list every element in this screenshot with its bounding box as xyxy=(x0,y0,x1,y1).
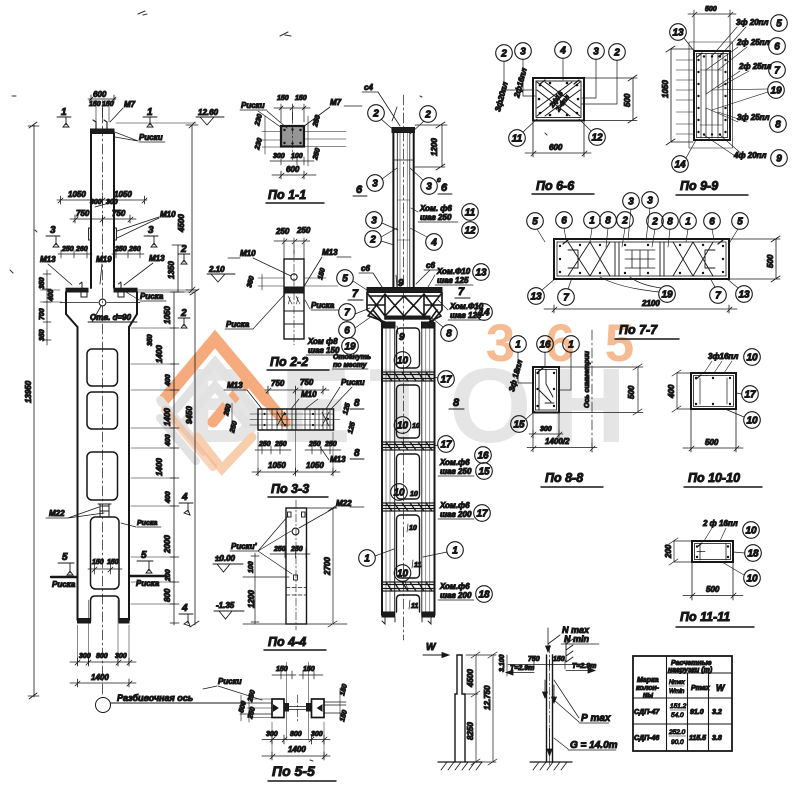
svg-text:10: 10 xyxy=(397,421,409,432)
svg-text:400: 400 xyxy=(165,491,172,504)
svg-text:По 3-3: По 3-3 xyxy=(271,482,309,496)
svg-text:19: 19 xyxy=(770,86,782,97)
svg-text:По 6-6: По 6-6 xyxy=(536,179,575,193)
svg-text:500: 500 xyxy=(705,438,719,447)
svg-text:с6: с6 xyxy=(426,261,435,270)
svg-text:2: 2 xyxy=(500,49,507,60)
svg-text:1400: 1400 xyxy=(91,673,109,682)
svg-text:нагрузки (т): нагрузки (т) xyxy=(668,667,713,674)
svg-text:14: 14 xyxy=(674,160,686,171)
svg-text:По 2-2: По 2-2 xyxy=(270,355,308,369)
svg-text:15: 15 xyxy=(478,467,490,478)
svg-text:8: 8 xyxy=(775,120,781,131)
svg-text:800: 800 xyxy=(163,588,172,602)
svg-text:800: 800 xyxy=(290,731,302,738)
svg-text:6: 6 xyxy=(774,42,780,53)
svg-text:Риска: Риска xyxy=(136,579,160,588)
svg-text:150: 150 xyxy=(276,666,288,673)
svg-text:1400/2: 1400/2 xyxy=(545,437,570,446)
svg-text:с4: с4 xyxy=(364,83,373,92)
svg-text:10: 10 xyxy=(397,569,409,580)
svg-text:1: 1 xyxy=(147,107,153,118)
svg-text:250: 250 xyxy=(258,441,271,448)
svg-text:300: 300 xyxy=(311,731,323,738)
svg-text:13950: 13950 xyxy=(24,380,33,403)
svg-text:1050: 1050 xyxy=(114,190,132,199)
svg-text:9450: 9450 xyxy=(185,406,194,424)
svg-text:±0.00: ±0.00 xyxy=(215,554,236,563)
svg-text:3.2: 3.2 xyxy=(712,709,722,716)
svg-text:1050: 1050 xyxy=(163,306,172,324)
svg-text:3: 3 xyxy=(371,216,377,227)
svg-text:Хом.ф6: Хом.ф6 xyxy=(439,501,470,510)
svg-text:6: 6 xyxy=(441,182,448,194)
svg-text:250: 250 xyxy=(290,546,303,553)
svg-text:10: 10 xyxy=(412,423,420,430)
svg-text:Хом.ф6: Хом.ф6 xyxy=(439,458,470,467)
svg-text:Риски: Риски xyxy=(218,677,242,686)
svg-text:5: 5 xyxy=(141,550,147,561)
svg-text:2: 2 xyxy=(424,110,431,121)
svg-text:7: 7 xyxy=(458,286,465,298)
svg-text:Риска: Риска xyxy=(52,580,76,589)
svg-text:17: 17 xyxy=(440,440,452,451)
svg-text:М7: М7 xyxy=(124,100,136,109)
svg-text:4ф 20пл: 4ф 20пл xyxy=(733,151,767,160)
svg-text:Отогнуть: Отогнуть xyxy=(333,354,371,361)
svg-text:300: 300 xyxy=(540,426,552,433)
svg-text:3: 3 xyxy=(148,225,154,236)
svg-text:6: 6 xyxy=(709,217,715,228)
svg-text:8250: 8250 xyxy=(466,722,475,740)
svg-text:М10: М10 xyxy=(240,249,256,258)
svg-text:260: 260 xyxy=(75,246,88,253)
svg-text:1: 1 xyxy=(568,340,574,351)
svg-text:4500: 4500 xyxy=(466,669,475,688)
svg-text:150: 150 xyxy=(553,656,565,663)
svg-text:2: 2 xyxy=(369,235,376,246)
svg-text:800: 800 xyxy=(96,653,108,660)
svg-text:3: 3 xyxy=(50,225,56,236)
svg-text:1400: 1400 xyxy=(163,408,172,426)
svg-text:Риски: Риски xyxy=(241,101,265,110)
svg-text:7: 7 xyxy=(715,291,721,302)
svg-text:3: 3 xyxy=(372,179,378,190)
svg-text:750: 750 xyxy=(112,209,126,218)
svg-text:1200: 1200 xyxy=(430,138,439,156)
svg-text:12.60: 12.60 xyxy=(198,108,219,117)
svg-text:11: 11 xyxy=(465,208,476,219)
svg-text:4: 4 xyxy=(430,238,437,249)
svg-text:2: 2 xyxy=(180,308,187,319)
svg-text:700: 700 xyxy=(39,308,46,320)
svg-text:М10: М10 xyxy=(160,210,176,219)
svg-text:М13: М13 xyxy=(227,381,243,390)
svg-text:Nmax: Nmax xyxy=(669,680,686,686)
svg-text:5: 5 xyxy=(342,274,348,285)
svg-text:Риски: Риски xyxy=(139,133,163,142)
svg-text:1: 1 xyxy=(452,546,458,557)
svg-text:1: 1 xyxy=(589,216,595,227)
svg-text:200: 200 xyxy=(664,544,673,559)
svg-text:Т=2.9т: Т=2.9т xyxy=(572,663,596,670)
svg-text:7: 7 xyxy=(352,288,359,300)
svg-text:15: 15 xyxy=(513,420,525,431)
svg-text:Марка: Марка xyxy=(637,677,659,684)
svg-text:3: 3 xyxy=(593,47,599,58)
svg-text:8: 8 xyxy=(453,397,460,409)
svg-text:1: 1 xyxy=(685,217,691,228)
svg-text:-1.35: -1.35 xyxy=(216,601,235,610)
svg-text:шаг 250: шаг 250 xyxy=(440,467,472,476)
svg-text:1050: 1050 xyxy=(306,461,324,470)
svg-text:шаг 125: шаг 125 xyxy=(450,311,482,320)
svg-text:6: 6 xyxy=(561,216,567,227)
svg-text:шаг 250: шаг 250 xyxy=(420,213,452,222)
svg-text:М13: М13 xyxy=(40,255,56,264)
svg-text:Риска: Риска xyxy=(226,320,250,329)
svg-text:150: 150 xyxy=(277,95,289,102)
svg-text:600: 600 xyxy=(286,165,300,174)
svg-text:12.750: 12.750 xyxy=(483,685,492,710)
svg-text:По 4-4: По 4-4 xyxy=(268,635,306,649)
svg-text:по месту: по месту xyxy=(333,362,368,369)
svg-text:3: 3 xyxy=(647,196,653,207)
svg-text:400: 400 xyxy=(165,374,172,387)
svg-text:17: 17 xyxy=(476,509,488,520)
svg-text:Риски': Риски' xyxy=(231,542,258,551)
svg-text:8: 8 xyxy=(667,217,673,228)
svg-text:16: 16 xyxy=(539,340,551,351)
svg-text:2: 2 xyxy=(372,109,379,120)
svg-text:3ф 20пл: 3ф 20пл xyxy=(736,18,769,27)
svg-text:Расчетные: Расчетные xyxy=(671,660,712,667)
svg-text:шаг 125: шаг 125 xyxy=(437,276,469,285)
svg-text:М13: М13 xyxy=(149,254,165,263)
svg-text:600: 600 xyxy=(549,143,563,152)
svg-text:8: 8 xyxy=(354,398,360,409)
svg-text:10: 10 xyxy=(409,525,417,532)
svg-text:СДП-46: СДП-46 xyxy=(634,735,659,742)
svg-text:М13: М13 xyxy=(330,455,346,464)
svg-text:Ось симметрии: Ось симметрии xyxy=(584,350,591,408)
svg-text:G = 14.0т: G = 14.0т xyxy=(570,740,618,751)
svg-text:750: 750 xyxy=(300,378,314,387)
svg-text:колон-: колон- xyxy=(636,685,660,692)
svg-text:5: 5 xyxy=(737,217,743,228)
svg-text:11: 11 xyxy=(411,603,418,610)
svg-text:Разбивочная ось: Разбивочная ось xyxy=(117,693,193,703)
svg-text:54.0: 54.0 xyxy=(671,712,684,719)
svg-text:500: 500 xyxy=(705,6,717,13)
svg-text:350: 350 xyxy=(39,277,46,289)
svg-text:М22: М22 xyxy=(49,509,65,518)
svg-text:200: 200 xyxy=(165,569,172,582)
svg-text:8: 8 xyxy=(354,448,360,459)
svg-text:500: 500 xyxy=(706,585,720,594)
svg-text:1: 1 xyxy=(515,340,521,351)
svg-text:5: 5 xyxy=(532,217,538,228)
svg-text:300: 300 xyxy=(79,653,91,660)
svg-text:250: 250 xyxy=(275,227,290,236)
svg-text:4: 4 xyxy=(181,492,188,503)
svg-text:1050: 1050 xyxy=(68,190,86,199)
svg-text:13: 13 xyxy=(738,290,750,301)
svg-text:2.10: 2.10 xyxy=(208,265,225,274)
svg-text:5: 5 xyxy=(62,552,68,563)
svg-text:Хом. ф6: Хом. ф6 xyxy=(419,204,452,213)
svg-text:13: 13 xyxy=(530,292,542,303)
svg-text:150: 150 xyxy=(92,559,104,566)
svg-text:150: 150 xyxy=(107,559,119,566)
svg-text:250: 250 xyxy=(296,226,311,235)
svg-text:260: 260 xyxy=(128,246,141,253)
svg-text:2: 2 xyxy=(180,244,187,255)
svg-text:7: 7 xyxy=(774,66,780,77)
svg-text:По 10-10: По 10-10 xyxy=(688,471,740,485)
svg-text:1050: 1050 xyxy=(661,80,670,98)
svg-text:1400: 1400 xyxy=(288,745,306,754)
svg-text:400: 400 xyxy=(165,434,172,447)
svg-text:3.8: 3.8 xyxy=(712,735,722,742)
svg-text:6: 6 xyxy=(344,326,350,337)
svg-text:600: 600 xyxy=(93,90,107,99)
svg-text:8: 8 xyxy=(605,216,611,227)
svg-text:8: 8 xyxy=(446,329,452,340)
svg-text:4: 4 xyxy=(559,46,566,57)
svg-text:500: 500 xyxy=(627,385,636,399)
svg-text:19: 19 xyxy=(661,290,673,301)
svg-text:250: 250 xyxy=(324,441,337,448)
svg-text:Wmin: Wmin xyxy=(669,689,685,695)
svg-text:4: 4 xyxy=(181,603,188,614)
svg-text:10: 10 xyxy=(746,353,758,364)
svg-text:2: 2 xyxy=(651,217,658,228)
svg-text:3: 3 xyxy=(628,197,634,208)
svg-text:шаг 200: шаг 200 xyxy=(440,591,472,600)
svg-text:18: 18 xyxy=(478,590,490,601)
svg-text:3: 3 xyxy=(426,182,432,193)
svg-text:750: 750 xyxy=(271,379,285,388)
svg-text:90.0: 90.0 xyxy=(671,739,684,746)
svg-text:150: 150 xyxy=(102,101,114,108)
svg-text:По 7-7: По 7-7 xyxy=(619,323,658,337)
svg-text:10: 10 xyxy=(393,488,405,499)
svg-text:350: 350 xyxy=(147,334,154,346)
svg-text:151.2: 151.2 xyxy=(670,703,687,710)
svg-text:100: 100 xyxy=(248,561,255,573)
svg-text:150: 150 xyxy=(295,95,307,102)
svg-text:9: 9 xyxy=(398,278,404,289)
svg-text:1400: 1400 xyxy=(155,345,164,363)
svg-text:По 11-11: По 11-11 xyxy=(680,610,730,624)
svg-text:М19: М19 xyxy=(96,255,112,264)
svg-text:10: 10 xyxy=(397,356,409,367)
svg-text:500: 500 xyxy=(623,93,632,107)
svg-text:Риска: Риска xyxy=(311,301,335,310)
svg-text:1: 1 xyxy=(61,107,67,118)
svg-text:с6: с6 xyxy=(361,264,370,273)
svg-text:250: 250 xyxy=(61,246,74,253)
svg-text:Т=2.9т: Т=2.9т xyxy=(510,665,534,672)
svg-text:ны: ны xyxy=(643,692,653,699)
svg-text:W: W xyxy=(426,642,437,653)
svg-text:По 9-9: По 9-9 xyxy=(680,179,718,193)
svg-text:91.0: 91.0 xyxy=(690,709,704,716)
svg-text:2: 2 xyxy=(613,48,620,59)
svg-text:Хом ф8: Хом ф8 xyxy=(307,337,338,346)
svg-text:9: 9 xyxy=(776,154,782,165)
svg-text:500: 500 xyxy=(766,254,775,268)
svg-text:По 1-1: По 1-1 xyxy=(268,188,306,202)
svg-text:400: 400 xyxy=(667,384,676,399)
svg-text:Риски: Риски xyxy=(341,378,365,387)
svg-text:19: 19 xyxy=(344,342,356,353)
svg-text:По 5-5: По 5-5 xyxy=(272,763,315,779)
svg-text:М13: М13 xyxy=(322,248,338,257)
svg-text:400: 400 xyxy=(48,289,55,302)
svg-text:18: 18 xyxy=(747,549,759,560)
svg-text:3ф 25пл: 3ф 25пл xyxy=(737,113,770,122)
svg-text:16: 16 xyxy=(477,451,489,462)
svg-text:2700: 2700 xyxy=(323,557,332,576)
svg-text:9: 9 xyxy=(399,332,405,343)
svg-text:Хом.Ф10: Хом.Ф10 xyxy=(436,267,471,276)
svg-text:12: 12 xyxy=(464,226,476,237)
svg-text:СДП-47: СДП-47 xyxy=(634,709,660,716)
svg-text:350: 350 xyxy=(39,329,46,341)
svg-text:2ф 25пл: 2ф 25пл xyxy=(736,38,770,47)
svg-text:115.5: 115.5 xyxy=(689,735,706,742)
svg-text:17: 17 xyxy=(744,390,756,401)
svg-text:10: 10 xyxy=(746,574,758,585)
svg-text:3ф16пл: 3ф16пл xyxy=(708,352,738,361)
svg-text:Хом.ф6: Хом.ф6 xyxy=(439,582,470,591)
svg-text:2000: 2000 xyxy=(163,535,172,554)
svg-text:150: 150 xyxy=(89,101,101,108)
svg-text:2100: 2100 xyxy=(641,299,660,308)
svg-text:150: 150 xyxy=(303,666,315,673)
svg-text:7: 7 xyxy=(563,293,569,304)
svg-text:17: 17 xyxy=(440,375,452,386)
svg-text:2ф 25пл: 2ф 25пл xyxy=(738,62,772,71)
svg-text:250: 250 xyxy=(273,546,286,553)
svg-text:шаг 200: шаг 200 xyxy=(440,510,472,519)
svg-text:10: 10 xyxy=(410,491,418,498)
svg-text:10: 10 xyxy=(745,526,757,537)
svg-text:13: 13 xyxy=(672,28,684,39)
svg-text:5: 5 xyxy=(776,19,782,30)
svg-text:Риска: Риска xyxy=(140,292,164,301)
svg-text:3: 3 xyxy=(520,47,526,58)
svg-text:252.0: 252.0 xyxy=(668,729,686,736)
svg-text:7: 7 xyxy=(344,308,350,319)
svg-text:М10: М10 xyxy=(301,390,317,399)
svg-text:Рmax: Рmax xyxy=(691,685,711,692)
svg-text:По 8-8: По 8-8 xyxy=(545,471,583,485)
svg-text:14: 14 xyxy=(478,308,490,319)
svg-text:300: 300 xyxy=(273,153,285,160)
svg-text:N min: N min xyxy=(564,634,590,644)
svg-text:300: 300 xyxy=(115,653,127,660)
svg-text:2 ф 16пл: 2 ф 16пл xyxy=(702,519,738,528)
svg-text:12: 12 xyxy=(591,133,603,144)
svg-text:250: 250 xyxy=(308,441,321,448)
svg-text:11: 11 xyxy=(414,562,421,569)
svg-text:3.100: 3.100 xyxy=(499,654,506,672)
svg-text:250: 250 xyxy=(274,441,287,448)
svg-text:6: 6 xyxy=(356,184,363,196)
svg-text:4500: 4500 xyxy=(177,214,186,233)
svg-text:Р max: Р max xyxy=(581,713,611,724)
svg-text:М22: М22 xyxy=(336,499,352,508)
svg-text:Риска: Риска xyxy=(137,520,157,527)
svg-text:1350: 1350 xyxy=(167,261,176,279)
svg-text:2: 2 xyxy=(621,216,628,227)
svg-text:М7: М7 xyxy=(330,98,342,107)
svg-text:1050: 1050 xyxy=(268,461,286,470)
svg-text:13: 13 xyxy=(475,268,487,279)
svg-text:10: 10 xyxy=(746,416,758,427)
svg-text:1: 1 xyxy=(364,554,370,565)
svg-text:1400: 1400 xyxy=(155,458,164,476)
svg-text:11: 11 xyxy=(512,134,523,145)
